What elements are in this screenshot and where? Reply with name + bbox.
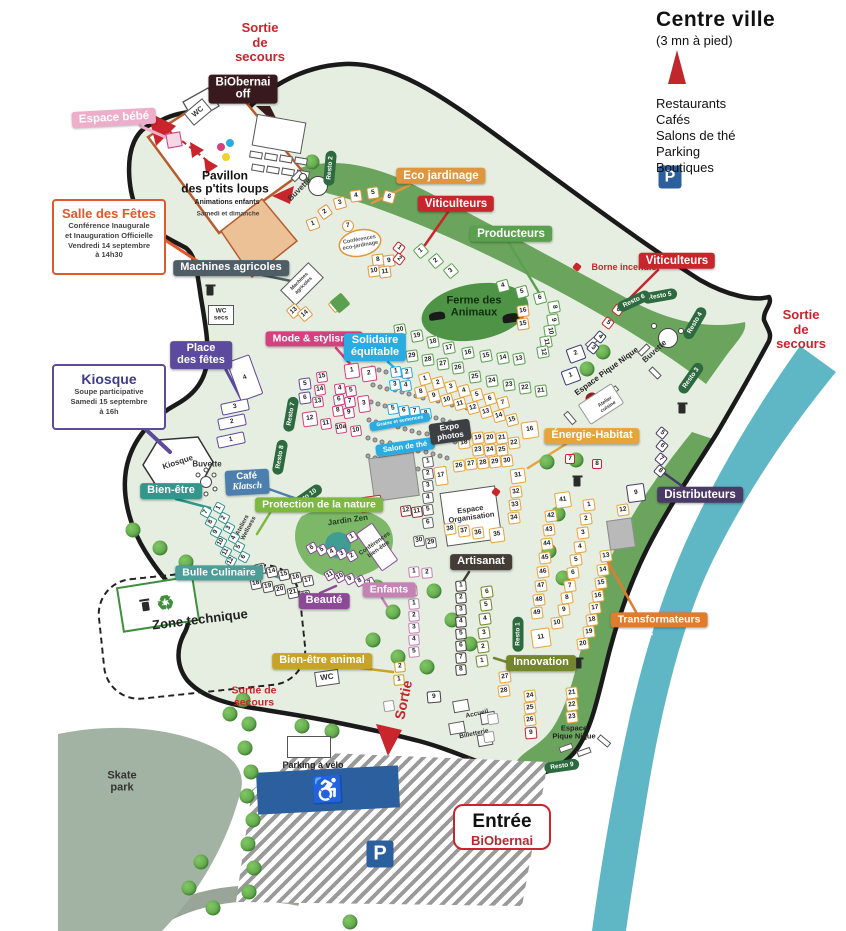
stand-salon-stands-2: 2 [422, 468, 434, 480]
badge-icon [222, 153, 230, 161]
stand-solidaire-equitable-2: 2 [401, 367, 413, 379]
text-skate-park: Skatepark [107, 770, 136, 795]
stand-producteurs-e-25: 25 [468, 370, 482, 384]
seat-dot [410, 428, 415, 433]
stand-stand-9-sortie-9: 9 [427, 690, 442, 703]
stand-producteurs-e-21: 21 [534, 384, 548, 398]
tree-icon [366, 633, 381, 648]
legend-subtitle: (3 mn à pied) [656, 33, 841, 48]
tree-icon [420, 660, 435, 675]
label-place-des-fetes: Placedes fêtes [170, 341, 232, 369]
structure [287, 736, 331, 758]
tree-icon [182, 881, 197, 896]
stand-energie-habitat-est-2: 2 [579, 512, 593, 526]
panel-entree: EntréeBiObernai [453, 804, 551, 850]
handicap-parking-strip: ♿ [256, 765, 400, 814]
stand-innovation-5: 5 [479, 598, 493, 612]
stand-energie-habitat-est-48: 48 [532, 593, 546, 607]
panel-salle-des-fetes: Salle des FêtesConférence Inauguraleet I… [52, 199, 166, 275]
stand-energie-habitat-31: 31 [510, 468, 527, 485]
stand-artisanat-7: 7 [455, 652, 467, 664]
stand-energie-habitat-est-45: 45 [538, 551, 552, 565]
stand-mode-stylisme-10a: 10a [335, 422, 347, 434]
tree-icon [153, 541, 168, 556]
stand-energie-habitat-est-42: 42 [544, 509, 558, 523]
stand-energie-habitat-est-12: 12 [616, 503, 630, 517]
stand-bulle-culinaire-21: 21 [286, 586, 299, 599]
panel-salle-des-fetes-line: Conférence Inaugurale [54, 221, 164, 231]
stand-producteurs-d-17: 17 [442, 341, 456, 355]
panel-salle-des-fetes-line: et Inauguration Officielle [54, 231, 164, 241]
stand-viticulteurs-7: 7 [565, 454, 575, 464]
panel-salle-des-fetes-title: Salle des Fêtes [54, 206, 164, 221]
stand-producteurs-d-13: 13 [512, 352, 526, 366]
stand-salon-stands-30: 30 [413, 535, 425, 547]
stand-energie-habitat-est-24: 24 [523, 689, 537, 703]
tree-icon [540, 455, 555, 470]
tree-icon [238, 741, 253, 756]
stand-energie-habitat-est-1: 1 [582, 498, 596, 512]
stand-energie-habitat-est-28: 28 [497, 684, 511, 698]
stand-viticulteurs-8: 8 [592, 459, 602, 469]
stand-bien-etre-animal-2: 2 [394, 661, 406, 673]
stand-energie-habitat-est-14: 14 [596, 563, 610, 577]
stand-energie-habitat-est-5: 5 [569, 553, 583, 567]
tree-icon [194, 855, 209, 870]
stand-innovation-2: 2 [476, 640, 490, 654]
legend-item: Boutiques [656, 160, 841, 176]
stand-energie-habitat-est-49: 49 [530, 606, 544, 620]
text-sortie-secours-est: Sortiedesecours [776, 308, 826, 352]
stand-energie-habitat-32: 32 [509, 485, 523, 499]
legend-items: RestaurantsCafésSalons de théParkingBout… [656, 96, 841, 176]
label-protection-nature: Protection de la nature [255, 497, 383, 512]
circle-structure [196, 473, 201, 478]
stand-salon-stands-5: 5 [422, 504, 434, 516]
stand-energie-habitat-22: 22 [507, 436, 521, 450]
stand-energie-habitat-est-4: 4 [573, 540, 587, 554]
stand-energie-habitat-est-13: 13 [599, 549, 613, 563]
stand-producteurs-d-14: 14 [496, 351, 510, 365]
stand-enfants-1: 1 [408, 598, 420, 610]
text-wc-secs: WCsecs [214, 308, 228, 323]
badge-icon [226, 139, 234, 147]
stand-artisanat-1: 1 [455, 580, 467, 592]
seat-dot [377, 367, 382, 372]
stand-solidaire-equitable-4: 4 [400, 380, 412, 392]
stand-artisanat-8: 8 [455, 664, 467, 676]
stand-enfants-2: 2 [408, 610, 420, 622]
stand-producteurs-d-16: 16 [461, 346, 475, 360]
tree-icon [223, 707, 238, 722]
label-producteurs: Producteurs [470, 226, 552, 242]
seat-dot [403, 427, 408, 432]
tree-icon [242, 885, 257, 900]
stand-energie-habitat-est-22: 22 [565, 698, 579, 712]
legend-title: Centre ville [656, 8, 841, 32]
legend-item: Parking [656, 144, 841, 160]
stand-viticulteurs-b-9: 9 [524, 726, 537, 739]
stand-mode-stylisme-9: 9 [343, 407, 355, 419]
stand-enfants-4: 4 [408, 634, 420, 646]
stand-place-des-fetes-6: 6 [298, 391, 312, 405]
stand-premiers-secours-stands-11: 11 [411, 506, 423, 518]
stand-energie-habitat-est-27: 27 [498, 670, 512, 684]
stand-bulle-culinaire-19: 19 [261, 580, 274, 593]
stand-innovation-3: 3 [477, 626, 491, 640]
label-eco-jardinage: Eco jardinage [396, 168, 485, 184]
stand-salon-stands-6: 6 [422, 517, 434, 529]
stand-enfants-5: 5 [408, 646, 420, 658]
tree-icon [386, 605, 401, 620]
badge-icon [217, 143, 225, 151]
stand-producteurs-e-24: 24 [485, 374, 499, 388]
text-wc-sud: WC [320, 673, 334, 684]
text-espace-pique-nique-sud: EspacePique Nique [552, 725, 595, 742]
stand-eco-jardinage-c-16: 16 [516, 304, 530, 318]
stand-artisanat-4: 4 [455, 616, 467, 628]
stand-producteurs-c-8: 8 [547, 300, 561, 314]
seat-dot [423, 450, 428, 455]
stand-artisanat-3: 3 [455, 604, 467, 616]
stand-mode-stylisme-15: 15 [316, 371, 328, 383]
recycle-icon: ♻ [155, 589, 177, 616]
stand-producteurs-d-19: 19 [410, 329, 424, 343]
stand-energie-habitat-est-46: 46 [536, 565, 550, 579]
stand-artisanat-6: 6 [455, 640, 467, 652]
panel-entree-line: BiObernai [455, 833, 549, 850]
stand-producteurs-e-22: 22 [518, 381, 532, 395]
seat-dot [407, 392, 412, 397]
text-parking-velo: Parking à vélo [282, 760, 343, 770]
stand-enfants-1: 1 [408, 566, 420, 578]
label-machines-agricoles: Machines agricoles [173, 260, 289, 276]
stand-energie-habitat-est-20: 20 [576, 637, 590, 651]
label-innovation: Innovation [506, 655, 576, 671]
stand-energie-habitat-est-9: 9 [557, 603, 571, 617]
stand-mode-stylisme-1: 1 [344, 363, 361, 380]
resto-pill: Resto 1 [513, 616, 524, 651]
stand-mode-stylisme-3: 3 [357, 395, 371, 414]
stand-mode-stylisme-14: 14 [314, 384, 326, 396]
seat-dot [445, 455, 450, 460]
seat-dot [424, 432, 429, 437]
tree-icon [295, 719, 310, 734]
stand-mode-stylisme-10: 10 [350, 425, 362, 437]
stand-eco-jardinage-c-15: 15 [516, 317, 530, 331]
stand-energie-habitat-est-3: 3 [576, 526, 590, 540]
seat-dot [438, 454, 443, 459]
label-viticulteurs-nord: Viticulteurs [418, 196, 494, 212]
stand-distributeurs-9: 9 [626, 483, 646, 503]
trash-icon [207, 287, 214, 296]
seat-dot [373, 437, 378, 442]
circle-structure [651, 323, 657, 329]
label-solidaire-equitable: Solidaireéquitable [344, 333, 406, 361]
seat-dot [416, 466, 421, 471]
stand-producteurs-e-29: 29 [405, 349, 419, 363]
stand-producteurs-e-26: 26 [451, 361, 465, 375]
stand-energie-habitat-est-26: 26 [523, 713, 537, 727]
circle-structure [212, 473, 217, 478]
circle-structure [213, 487, 218, 492]
label-distributeurs: Distributeurs [657, 487, 743, 503]
label-viticulteurs-est: Viticulteurs [639, 253, 715, 269]
stand-eco-jardinage-4: 4 [349, 189, 363, 203]
stand-producteurs-e-27: 27 [436, 357, 450, 371]
seat-dot [433, 416, 438, 421]
stand-bulle-culinaire-14: 14 [265, 565, 278, 578]
text-pavillon-dates: Samedi et dimanche [197, 210, 260, 217]
stand-producteurs-d-18: 18 [426, 335, 440, 349]
stand-energie-habitat-30: 30 [500, 454, 514, 468]
stand-energie-habitat-36: 36 [471, 526, 485, 540]
circle-structure [204, 492, 209, 497]
label-bien-etre: Bien-être [140, 483, 202, 499]
stand-innovation-4: 4 [478, 612, 492, 626]
stand-energie-habitat-16: 16 [520, 420, 539, 439]
text-ferme-des-animaux: Ferme desAnimaux [446, 295, 501, 320]
label-bien-etre-animal: Bien-être animal [272, 653, 372, 669]
stand-salon-stands-29: 29 [425, 537, 437, 549]
label-bulle-culinaire: Bulle Culinaire [175, 565, 263, 580]
label-transformateurs: Transformateurs [611, 612, 708, 627]
legend-item: Salons de thé [656, 128, 841, 144]
parking-icon: P [367, 841, 394, 868]
stand-energie-habitat-34: 34 [507, 511, 521, 525]
biobernai-site-map: ♻ ♿ Centre ville (3 mn à pied) Restauran… [0, 0, 846, 931]
stand-energie-habitat-est-43: 43 [542, 523, 556, 537]
stand-bulle-culinaire-20: 20 [273, 583, 286, 596]
text-pavillon-sous-titre: Animations enfants [195, 199, 260, 207]
tree-icon [241, 837, 256, 852]
stand-eco-jardinage-b-11: 11 [378, 265, 392, 279]
stand-innovation-6: 6 [480, 585, 494, 599]
tree-icon [247, 861, 262, 876]
stand-energie-habitat-est-15: 15 [594, 576, 608, 590]
legend-item: Restaurants [656, 96, 841, 112]
trash-icon [574, 478, 581, 487]
panel-kiosque-line: Samedi 15 septembre [54, 397, 164, 407]
stand-energie-habitat-37: 37 [457, 524, 471, 538]
label-energie-habitat: Énergie-Habitat [544, 428, 639, 444]
text-sortie-secours-sud: Sortie desecours [232, 685, 277, 709]
tree-icon [246, 813, 261, 828]
stand-mode-stylisme-12: 12 [302, 411, 319, 428]
stand-energie-habitat-17: 17 [433, 466, 449, 487]
label-artisanat: Artisanat [450, 554, 512, 570]
tree-icon [343, 915, 358, 930]
stand-mode-stylisme-13: 13 [312, 396, 324, 408]
legend-centre-ville: Centre ville (3 mn à pied) RestaurantsCa… [656, 8, 841, 176]
seat-dot [378, 384, 383, 389]
wheelchair-icon: ♿ [311, 774, 345, 807]
stand-producteurs-c-12: 12 [536, 345, 550, 359]
structure [165, 131, 182, 148]
stand-bulle-culinaire-15: 15 [277, 568, 290, 581]
stand-energie-habitat-est-25: 25 [523, 701, 537, 715]
structure [606, 517, 636, 550]
stand-producteurs-e-28: 28 [421, 353, 435, 367]
stand-artisanat-2: 2 [455, 592, 467, 604]
panel-kiosque-title: Kiosque [54, 371, 164, 387]
stand-place-des-fetes-5: 5 [298, 377, 312, 391]
tree-icon [427, 584, 442, 599]
stand-enfants-3: 3 [408, 622, 420, 634]
stand-energie-habitat-est-11: 11 [530, 627, 551, 648]
tree-icon [242, 717, 257, 732]
label-biobernai-off: BiObernaioff [209, 75, 278, 104]
seat-dot [371, 383, 376, 388]
panel-kiosque: KiosqueSoupe participativeSamedi 15 sept… [52, 364, 166, 430]
text-buvette-centre: Buvette [192, 461, 221, 470]
stand-energie-habitat-35: 35 [489, 527, 506, 544]
seat-dot [366, 436, 371, 441]
stand-energie-habitat-est-10: 10 [550, 616, 564, 630]
stand-salon-stands-3: 3 [422, 480, 434, 492]
text-sortie-secours-nord: Sortiedesecours [235, 21, 285, 65]
tree-icon [206, 901, 221, 916]
panel-kiosque-line: à 16h [54, 407, 164, 417]
panel-salle-des-fetes-line: à 14h30 [54, 250, 164, 260]
stand-energie-habitat-est-23: 23 [565, 710, 579, 724]
stand-energie-habitat-est-21: 21 [565, 686, 579, 700]
tree-icon [244, 765, 259, 780]
stand-salon-stands-1: 1 [422, 456, 434, 468]
stand-enfants-2: 2 [421, 567, 433, 579]
tree-icon [240, 789, 255, 804]
panel-kiosque-line: Soupe participative [54, 387, 164, 397]
stand-energie-habitat-est-47: 47 [534, 579, 548, 593]
trash-icon [679, 405, 686, 414]
seat-dot [384, 369, 389, 374]
seat-dot [376, 401, 381, 406]
panel-entree-title: Entrée [455, 811, 549, 833]
stand-eco-jardinage-5: 5 [366, 186, 380, 200]
text-pavillon-titre: Pavillondes p'tits loups [181, 170, 269, 197]
stand-bulle-culinaire-16: 16 [289, 571, 302, 584]
panel-salle-des-fetes-line: Vendredi 14 septembre [54, 241, 164, 251]
stand-energie-habitat-est-41: 41 [554, 491, 572, 509]
legend-item: Cafés [656, 112, 841, 128]
stand-producteurs-e-23: 23 [502, 378, 516, 392]
label-beaute: Beauté [299, 593, 350, 609]
label-enfants: Enfants [363, 582, 416, 597]
stand-salon-stands-4: 4 [422, 492, 434, 504]
stand-innovation-1: 1 [475, 654, 489, 668]
trash-icon [141, 601, 149, 611]
stand-producteurs-d-15: 15 [479, 349, 493, 363]
label-cafe-klatsch: CaféKlatsch [225, 469, 270, 496]
stand-artisanat-5: 5 [455, 628, 467, 640]
tree-icon [126, 523, 141, 538]
seat-dot [417, 430, 422, 435]
stand-bulle-culinaire-17: 17 [301, 574, 314, 587]
stand-mode-stylisme-11: 11 [320, 418, 332, 430]
stand-energie-habitat-est-44: 44 [540, 537, 554, 551]
stand-mode-stylisme-2: 2 [361, 366, 378, 383]
stand-energie-habitat-est-6: 6 [566, 566, 580, 580]
stand-energie-habitat-33: 33 [508, 498, 522, 512]
